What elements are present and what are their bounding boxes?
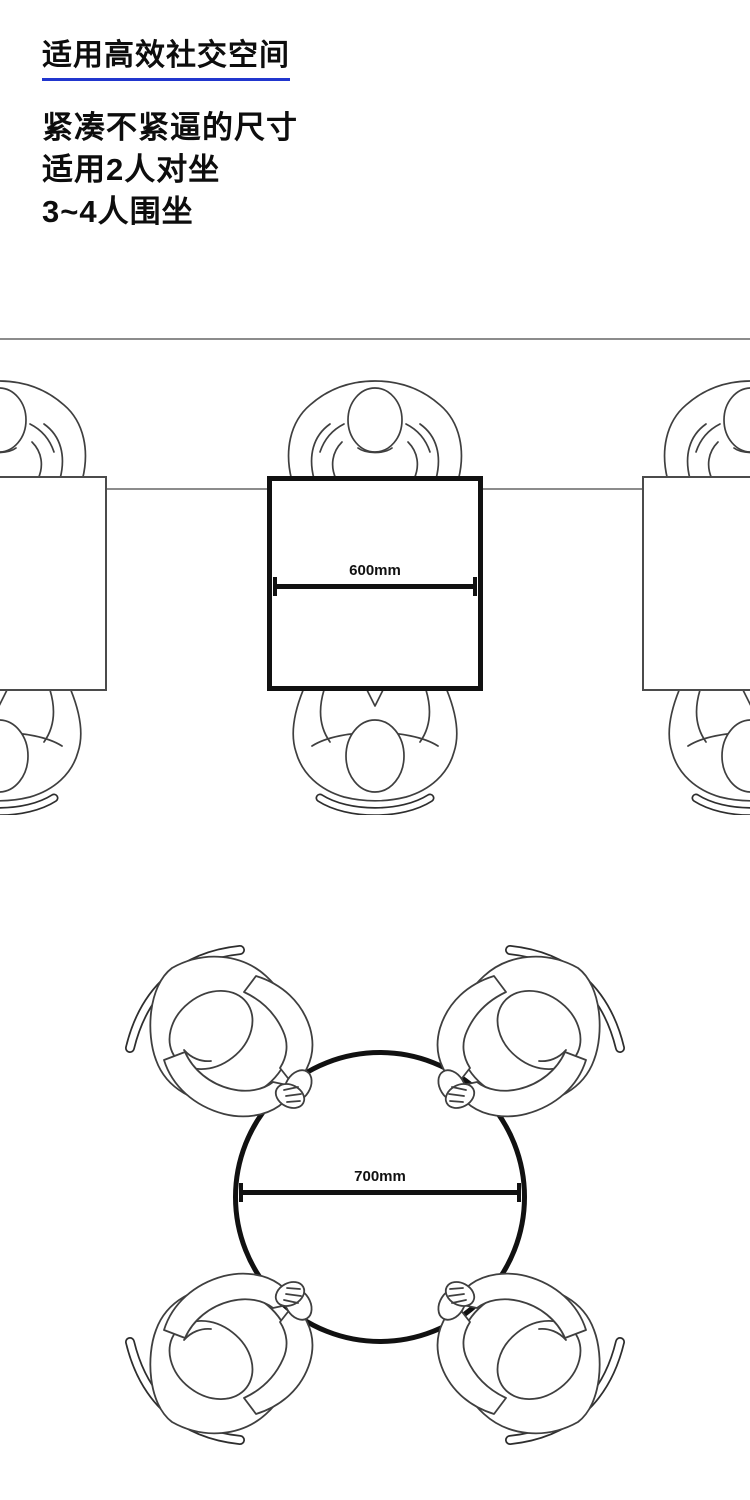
dimension-tick-right: [517, 1183, 521, 1202]
person-figure-ne: [433, 950, 620, 1116]
space-planning-poster: 适用高效社交空间 紧凑不紧逼的尺寸 适用2人对坐 3~4人围坐 600mm 70…: [0, 0, 750, 1500]
person-top-left-table: [0, 374, 94, 479]
dimension-tick-left: [239, 1183, 243, 1202]
dimension-tick-left: [273, 577, 277, 596]
person-bottom-left-table: [0, 690, 94, 815]
side-table-right: [642, 476, 750, 691]
dimension-arrow-600: [273, 584, 477, 589]
dimension-marker-700: 700mm: [239, 1168, 521, 1195]
person-figure-nw: [130, 950, 317, 1116]
person-figure-sw: [130, 1274, 317, 1440]
person-top-right-table: [656, 374, 750, 479]
person-bottom-right-table: [656, 690, 750, 815]
person-figure-se: [433, 1274, 620, 1440]
description-line-1: 紧凑不紧逼的尺寸: [42, 107, 298, 149]
dimension-label-600: 600mm: [273, 562, 477, 580]
description-line-2: 适用2人对坐: [42, 149, 298, 191]
description-line-3: 3~4人围坐: [42, 191, 298, 233]
header: 适用高效社交空间 紧凑不紧逼的尺寸 适用2人对坐 3~4人围坐: [42, 30, 298, 233]
page-title: 适用高效社交空间: [42, 30, 290, 81]
dimension-arrow-700: [239, 1190, 521, 1195]
dimension-marker-600: 600mm: [273, 562, 477, 589]
dimension-tick-right: [473, 577, 477, 596]
guide-line-top: [0, 338, 750, 340]
description: 紧凑不紧逼的尺寸 适用2人对坐 3~4人围坐: [42, 107, 298, 233]
side-table-left: [0, 476, 107, 691]
round-table-people: [0, 930, 750, 1500]
person-top-center-table: [280, 374, 470, 479]
dimension-label-700: 700mm: [239, 1168, 521, 1186]
person-bottom-center-table: [280, 690, 470, 815]
